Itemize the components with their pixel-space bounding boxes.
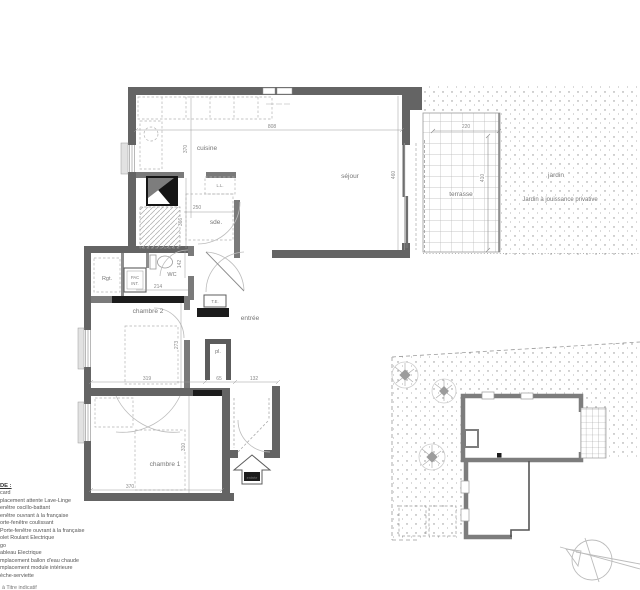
sde-depth-dim: 366 (178, 218, 184, 227)
dimension-lines (89, 96, 404, 493)
door-swings (116, 202, 270, 452)
legend-item: èche-serviette (0, 573, 170, 581)
technical-shaft (140, 176, 180, 248)
placard-label: pl. (215, 349, 221, 355)
te-label: T.E. (211, 299, 218, 304)
entrance-tag-label: entrée (247, 476, 258, 480)
legend-item: go (0, 543, 170, 551)
legend-item: mplacement module intérieure (0, 565, 170, 573)
floor-plan-page: jardin Jardin à jouissance privative 220… (0, 0, 640, 590)
placard-width-dim: 65 (216, 376, 222, 382)
compass-icon (560, 538, 640, 582)
legend-item: mplacement ballon d'eau chaude (0, 558, 170, 566)
sejour-sliding-door (403, 143, 417, 250)
chambre1-label: chambre 1 (150, 461, 181, 468)
terrasse-width-dim: 220 (462, 124, 471, 130)
cuisine-depth-dim: 370 (183, 145, 189, 154)
top-width-dim: 808 (268, 124, 277, 130)
legend-item: card (0, 490, 170, 498)
jardin-label: jardin (547, 172, 564, 179)
legend-item: enêtre ouvrant à la française (0, 513, 170, 521)
chambre1-window (78, 402, 91, 443)
sde-width-dim: 250 (193, 205, 202, 211)
sejour-depth-dim: 460 (391, 171, 397, 180)
sde-label: sde. (210, 219, 222, 226)
cuisine-window (121, 143, 135, 174)
legend-item: ableau Electrique (0, 550, 170, 558)
legend-footnote: à Titre indicatif (2, 585, 37, 590)
jardin-note-label: Jardin à jouissance privative (522, 197, 598, 203)
terrasse-area: 220 410 terrasse (423, 113, 501, 252)
wc-label: WC (167, 272, 176, 278)
sejour-label: séjour (341, 173, 360, 180)
hall-width-dim: 132 (250, 376, 259, 382)
legend-item: olet Roulant Electrique (0, 535, 170, 543)
cuisine-label: cuisine (197, 145, 218, 152)
room-labels: cuisine séjour sde. WC Rgt. PAC INT. T.E… (102, 145, 360, 468)
entree-label: entrée (241, 315, 260, 322)
wall-annotation-boxes (263, 88, 292, 104)
wc-width-dim: 214 (154, 284, 163, 290)
chambre2-label: chambre 2 (133, 308, 164, 315)
terrasse-depth-dim: 410 (480, 174, 486, 183)
legend-item: orte-fenêtre coulissant (0, 520, 170, 528)
chambre2-depth-dim: 273 (174, 341, 180, 350)
chambre2-width-dim: 319 (143, 376, 152, 382)
terrasse-label: terrasse (449, 191, 473, 198)
pac-label-2: INT. (131, 281, 138, 286)
pac-label-1: PAC (131, 275, 139, 280)
legend: DE : card placement attente Lave-Linge e… (0, 482, 170, 580)
legend-item: Porte-fenêtre ouvrant à la française (0, 528, 170, 536)
chambre2-window (78, 328, 91, 369)
entrance-arrow: entrée (234, 455, 270, 484)
legend-item: placement attente Lave-Linge (0, 498, 170, 506)
rgt-label: Rgt. (102, 276, 113, 282)
legend-item: enêtre oscillo-battant (0, 505, 170, 513)
ll-label: L.L. (217, 183, 224, 188)
site-plan (392, 342, 640, 582)
legend-heading: DE : (0, 482, 170, 490)
wc-depth-dim: 142 (177, 260, 183, 269)
chambre1-depth-dim: 310 (181, 443, 187, 452)
